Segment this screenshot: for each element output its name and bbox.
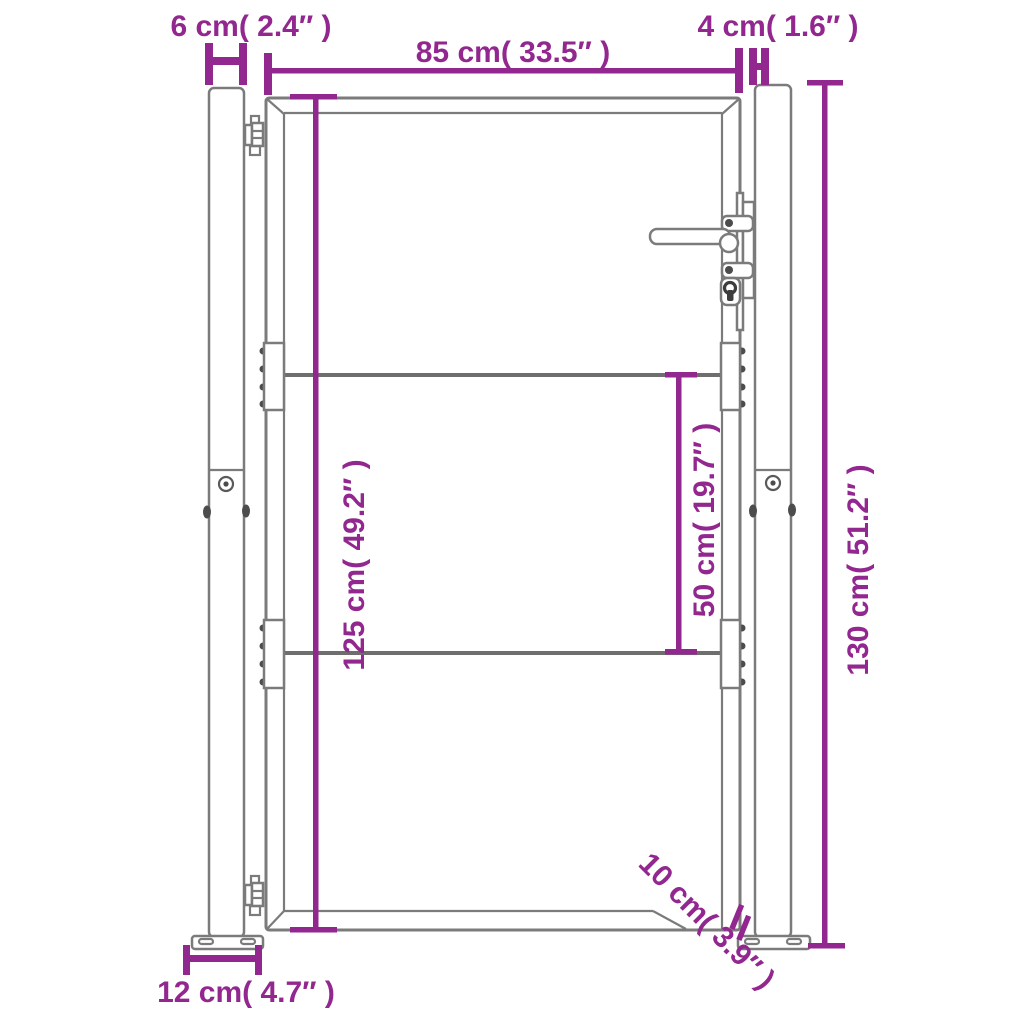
lock-clamp-screw — [725, 266, 733, 274]
hinge-left-top — [264, 343, 284, 410]
fitting-nut — [250, 146, 260, 155]
label-left-post-width: 6 cm( 2.4″ ) — [170, 10, 331, 43]
dim-post-height-line — [807, 80, 845, 949]
fitting-hex-head — [252, 123, 263, 146]
fitting-hex-head — [252, 883, 263, 906]
product-diagram: 6 cm( 2.4″ ) 85 cm( 33.5″ ) 4 cm( 1.6″ )… — [0, 0, 1024, 1024]
label-rail-gap: 50 cm( 19.7″ ) — [688, 423, 721, 617]
gate-drawing: 6 cm( 2.4″ ) 85 cm( 33.5″ ) 4 cm( 1.6″ )… — [0, 0, 1024, 1024]
dim-right-post-width-line — [749, 48, 769, 85]
left-post-lug-left — [203, 506, 211, 519]
lock-clamp-screw — [725, 219, 733, 227]
label-post-height: 130 cm( 51.2″ ) — [842, 464, 875, 675]
right-post-lug-left — [749, 505, 757, 518]
gate-handle — [650, 229, 730, 244]
bracket-right-top — [721, 343, 740, 410]
fitting-nut — [250, 906, 260, 915]
dim-left-post-width-line — [205, 43, 247, 85]
label-base-width: 12 cm( 4.7″ ) — [157, 976, 335, 1009]
right-post-bolt-dot — [770, 480, 775, 485]
right-post-lug-right — [788, 504, 796, 517]
bracket-right-bottom — [721, 620, 740, 688]
left-post-bottom-fitting — [245, 876, 263, 915]
left-post-top-fitting — [245, 116, 263, 155]
left-post-bolt-dot — [223, 481, 228, 486]
keyhole-slot — [727, 290, 734, 301]
left-post-body — [209, 88, 244, 937]
label-gate-height: 125 cm( 49.2″ ) — [338, 459, 371, 670]
handle-pivot — [720, 234, 738, 252]
right-post-body — [755, 85, 791, 937]
left-post — [192, 88, 263, 949]
label-gate-width: 85 cm( 33.5″ ) — [416, 36, 610, 69]
left-post-lug-right — [242, 505, 250, 518]
hinge-left-bottom — [264, 620, 284, 688]
label-right-post-width: 4 cm( 1.6″ ) — [697, 10, 858, 43]
